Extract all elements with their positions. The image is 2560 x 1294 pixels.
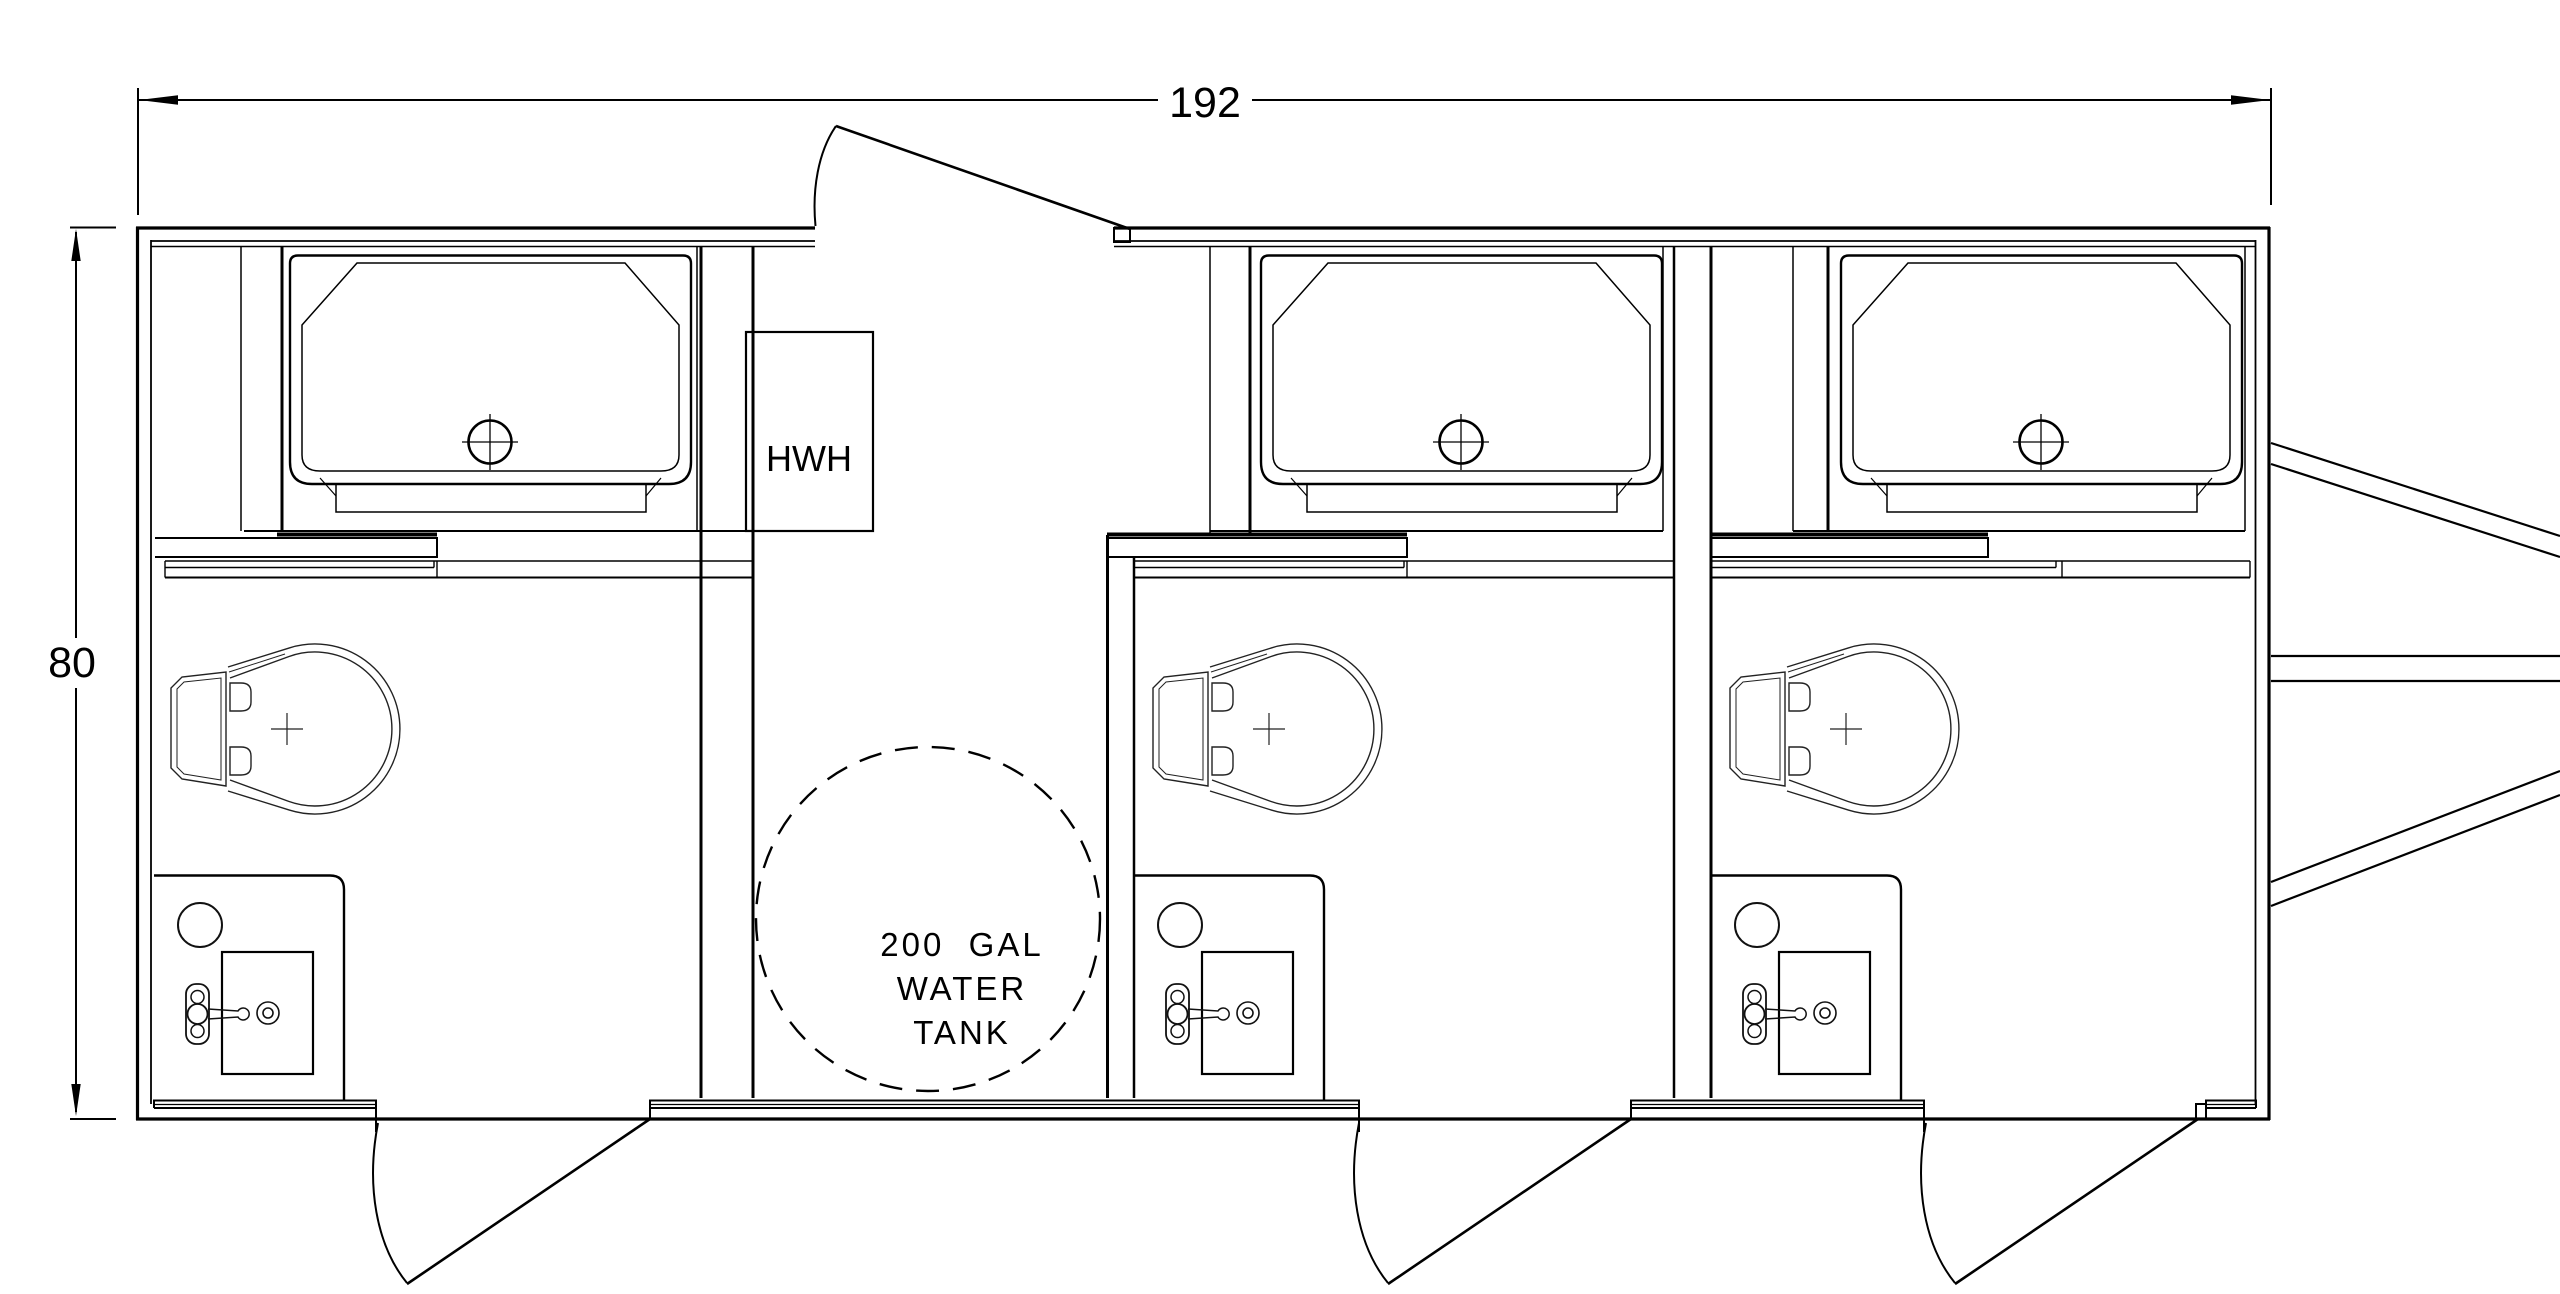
svg-text:HWH: HWH (766, 438, 852, 479)
svg-text:192: 192 (1169, 79, 1241, 127)
svg-text:TANK: TANK (913, 1014, 1011, 1051)
svg-text:200 GAL: 200 GAL (880, 926, 1043, 963)
svg-text:WATER: WATER (897, 970, 1027, 1007)
svg-text:80: 80 (48, 639, 96, 687)
